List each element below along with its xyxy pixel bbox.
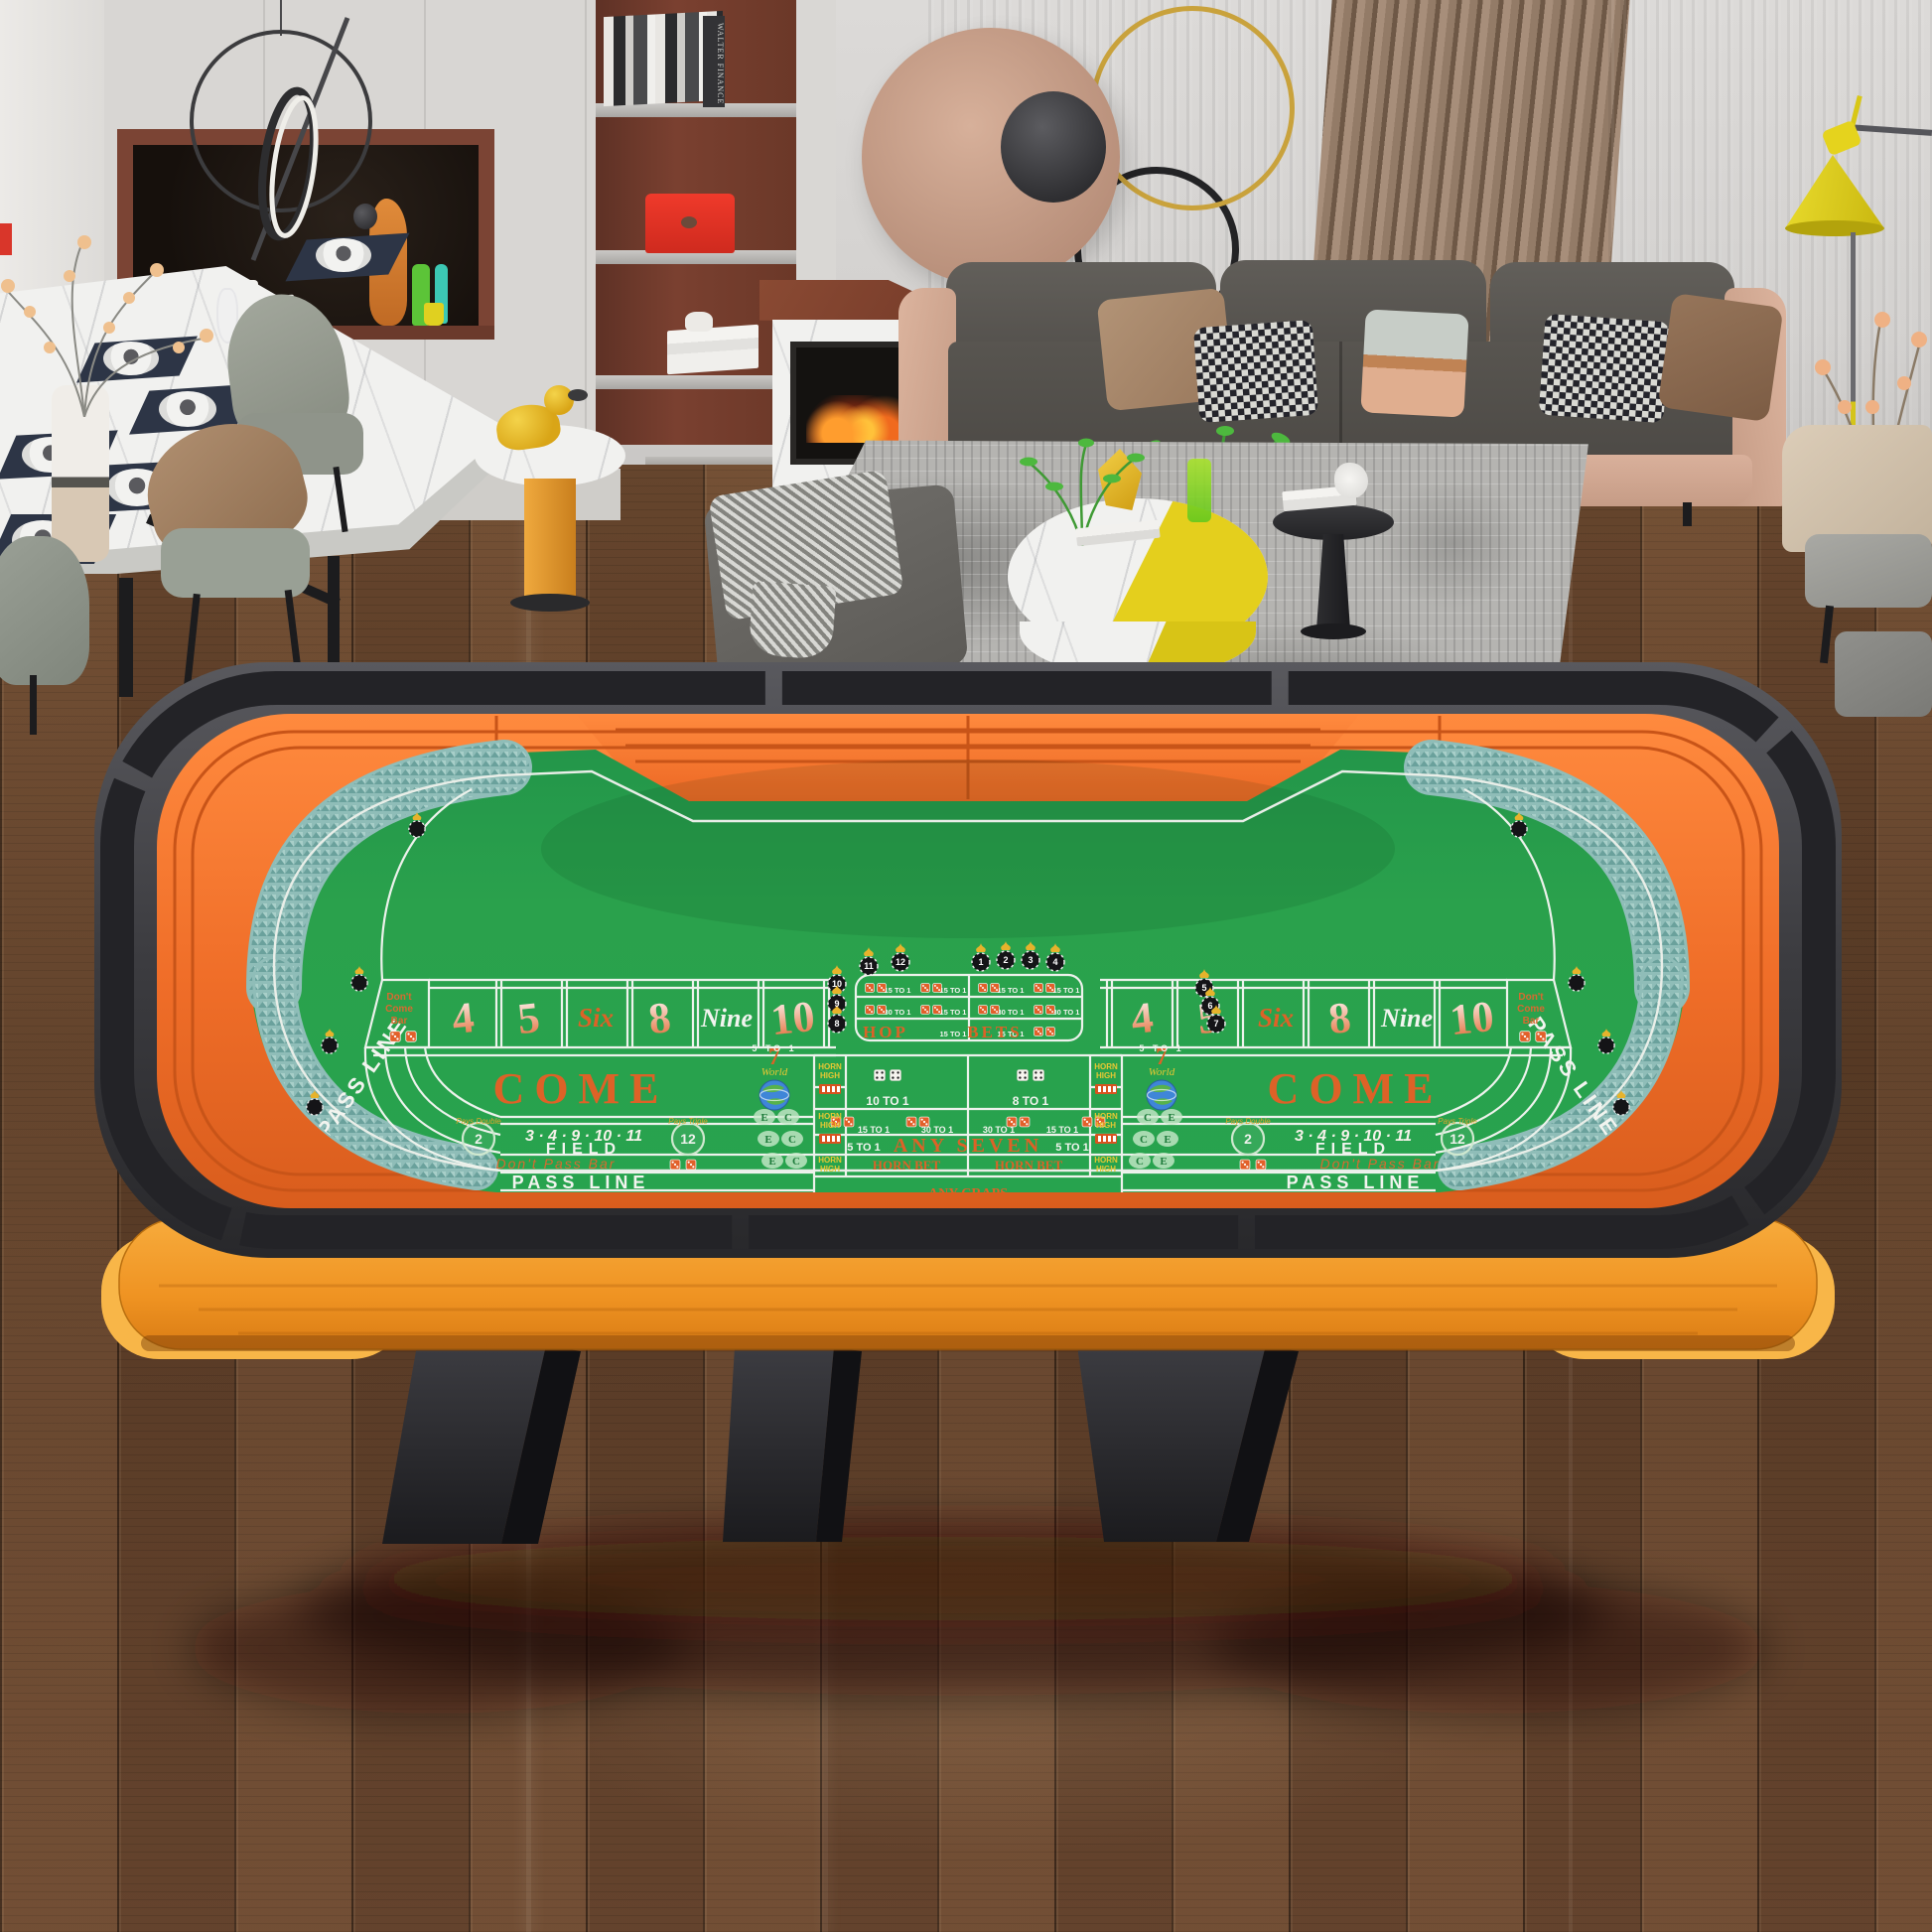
horn-high: HIGH: [1096, 1071, 1116, 1080]
dont-come-2-right: Come: [1517, 1004, 1545, 1015]
dont-come-1-right: Don't: [1518, 992, 1544, 1003]
hop-odds: 15 TO 1: [940, 1030, 967, 1038]
chip-5: 5: [1201, 983, 1206, 993]
chip-9: 9: [834, 999, 839, 1009]
white-book-stack: [667, 325, 759, 374]
any-seven-5to1: 5 TO 1: [847, 1142, 880, 1154]
e-oval: E: [1164, 1134, 1171, 1146]
gold-ring-decor: [1090, 6, 1295, 210]
horn-high: HIGH: [820, 1165, 840, 1173]
any-seven-5to1: 5 TO 1: [1055, 1142, 1088, 1154]
pillow-brown: [1657, 293, 1783, 422]
dont-come-3-right: Bar: [1523, 1016, 1540, 1027]
hop-odds: 30 TO 1: [885, 1008, 911, 1017]
pillow-gray-copper: [1360, 309, 1468, 417]
sofa-leg: [1683, 502, 1692, 526]
table-legs: [382, 1345, 1299, 1544]
c-oval: C: [784, 1112, 792, 1124]
odds-15: 15 TO 1: [1046, 1125, 1078, 1135]
globe-icon: [759, 1080, 789, 1110]
c-oval: C: [1140, 1134, 1148, 1146]
chip-1: 1: [978, 957, 983, 967]
field-two-right: 2: [1244, 1131, 1252, 1147]
odds-30: 30 TO 1: [921, 1125, 953, 1135]
chip-7: 7: [1213, 1019, 1218, 1029]
pays-double-left: Pays Double: [456, 1117, 501, 1126]
pays-double-right: Pays Double: [1225, 1117, 1271, 1126]
odds-30: 30 TO 1: [983, 1125, 1015, 1135]
chip-10: 10: [832, 979, 842, 989]
chip-8: 8: [834, 1019, 839, 1029]
pillow-houndstooth: [1193, 320, 1318, 423]
hop-odds: 15 TO 1: [998, 986, 1025, 995]
point-nine-left: Nine: [700, 1004, 753, 1033]
hop-label: HOP: [863, 1023, 908, 1041]
ten-to-one: 10 TO 1: [866, 1094, 908, 1108]
c-oval: C: [1144, 1112, 1152, 1124]
ottoman-blanket-drape: [749, 581, 837, 660]
pillow-houndstooth: [1539, 314, 1671, 424]
felt-shading: [541, 759, 1395, 938]
field-numbers-right: 3 · 4 · 9 · 10 · 11: [1295, 1128, 1412, 1145]
pays-triple-left: Pays Triple: [668, 1117, 708, 1126]
horn-high: HIGH: [1096, 1165, 1116, 1173]
living-room-scene: WALTER FINANCE: [0, 0, 1932, 1932]
chip-11: 11: [864, 961, 874, 971]
eight-to-one: 8 TO 1: [1013, 1094, 1049, 1108]
armchair-cushion: [1805, 534, 1932, 608]
horn-high: HORN: [818, 1062, 842, 1071]
c-oval: C: [1136, 1156, 1144, 1168]
pedestal-table-base: [524, 479, 576, 602]
gold-duck-head: [544, 385, 574, 415]
dont-come-2-left: Come: [385, 1004, 413, 1015]
point-10-right: 10: [1448, 992, 1496, 1044]
dont-pass-bar-left: Don't Pass Bar: [496, 1156, 617, 1172]
field-twelve-left: 12: [680, 1131, 696, 1147]
world-label-left: World: [761, 1066, 788, 1078]
fire-flames: [806, 395, 909, 443]
dont-come-1-left: Don't: [386, 992, 412, 1003]
world-5to1-right: 5 TO 1: [1139, 1043, 1183, 1053]
craps-table: PASS LINE PASS LINE Don't Pass Bar FIELD…: [79, 650, 1857, 1862]
book-spine-finance: WALTER FINANCE: [703, 16, 725, 107]
any-seven: ANY SEVEN: [894, 1135, 1042, 1157]
point-six-right: Six: [1258, 1003, 1294, 1033]
side-table-base: [1301, 623, 1366, 639]
horn-high: HORN: [1094, 1156, 1118, 1165]
horn-high: HORN: [1094, 1062, 1118, 1071]
odds-15: 15 TO 1: [858, 1125, 890, 1135]
chip-2: 2: [1003, 955, 1008, 965]
hop-odds: 30 TO 1: [998, 1008, 1025, 1017]
horn-high: HORN: [818, 1112, 842, 1121]
hop-odds: 15 TO 1: [940, 1008, 967, 1017]
table-shadow: [189, 1521, 1767, 1714]
globe-icon: [1147, 1080, 1176, 1110]
pays-triple-right: Pays Triple: [1438, 1117, 1477, 1126]
chip-4: 4: [1052, 957, 1057, 967]
field-twelve-right: 12: [1449, 1131, 1465, 1147]
vase-flowers: [0, 228, 248, 417]
dining-chair-brown-seat: [161, 528, 310, 598]
horn-high: HORN: [818, 1156, 842, 1165]
white-cup: [685, 312, 713, 332]
duck-beak: [568, 389, 588, 401]
e-oval: E: [768, 1156, 775, 1168]
point-six-left: Six: [578, 1003, 614, 1033]
hop-odds: 15 TO 1: [940, 986, 967, 995]
horn-high: HIGH: [820, 1121, 840, 1130]
horn-high: HIGH: [1096, 1121, 1116, 1130]
dinner-plate: [316, 238, 371, 272]
horn-high: HORN: [1094, 1112, 1118, 1121]
armchair-right: [1782, 425, 1932, 552]
world-5to1-left: 5 TO 1: [752, 1043, 796, 1053]
shelf-board-1: [596, 103, 796, 117]
chip-3: 3: [1028, 955, 1033, 965]
yellow-cup: [424, 303, 444, 326]
dont-pass-bar-right: Don't Pass Bar: [1320, 1156, 1441, 1172]
c-oval: C: [788, 1134, 796, 1146]
horn-bet-right: HORN BET: [995, 1158, 1063, 1173]
field-two-left: 2: [475, 1131, 483, 1147]
e-oval: E: [764, 1134, 771, 1146]
green-glass-vase: [1187, 459, 1211, 522]
hop-odds: 15 TO 1: [1053, 986, 1080, 995]
hop-odds: 30 TO 1: [1053, 1008, 1080, 1017]
chip-12: 12: [896, 957, 905, 967]
pass-line-bottom-right: PASS LINE: [1287, 1173, 1425, 1192]
pass-line-bottom-left: PASS LINE: [512, 1173, 650, 1192]
c-oval: C: [792, 1156, 800, 1168]
pedestal-table-foot: [510, 594, 590, 612]
e-oval: E: [1168, 1112, 1174, 1124]
e-oval: E: [1160, 1156, 1167, 1168]
shelf-board-3: [596, 375, 796, 389]
box-button: [681, 216, 697, 228]
bets-label: BETS: [967, 1023, 1022, 1041]
chip-6: 6: [1207, 1001, 1212, 1011]
field-numbers-left: 3 · 4 · 9 · 10 · 11: [525, 1128, 642, 1145]
world-label-right: World: [1149, 1066, 1175, 1078]
come-left: COME: [493, 1064, 669, 1113]
dont-come-3-left: Bar: [391, 1016, 408, 1027]
come-right: COME: [1268, 1064, 1444, 1113]
e-oval: E: [760, 1112, 767, 1124]
lamp-shade-rim: [1785, 220, 1884, 236]
dining-chair-gray: [0, 536, 89, 685]
tissue-flower: [1334, 463, 1368, 498]
point-10-left: 10: [768, 992, 817, 1044]
disc-center-dome: [1001, 91, 1106, 203]
horn-high: HIGH: [820, 1071, 840, 1080]
chair-leg: [30, 675, 37, 735]
point-nine-right: Nine: [1380, 1004, 1433, 1033]
horn-bet-left: HORN BET: [873, 1158, 941, 1173]
hop-odds: 15 TO 1: [885, 986, 911, 995]
